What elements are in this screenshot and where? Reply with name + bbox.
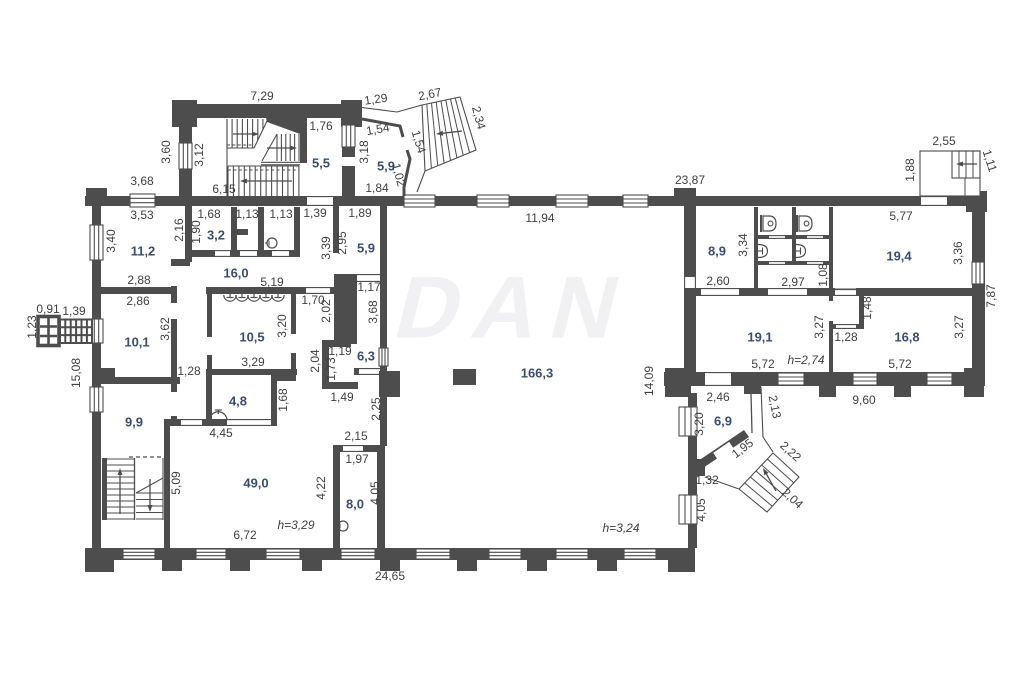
svg-text:5,5: 5,5	[312, 155, 330, 170]
svg-text:3,62: 3,62	[158, 317, 172, 341]
svg-text:1,68: 1,68	[276, 388, 290, 412]
svg-text:14,09: 14,09	[642, 366, 656, 396]
svg-text:166,3: 166,3	[521, 365, 554, 380]
svg-text:DAN: DAN	[386, 257, 643, 355]
svg-text:3,53: 3,53	[130, 208, 154, 222]
svg-text:2,95: 2,95	[335, 231, 349, 255]
svg-text:3,68: 3,68	[130, 174, 154, 188]
svg-text:3,29: 3,29	[241, 355, 265, 369]
svg-text:3,27: 3,27	[812, 315, 826, 339]
svg-text:2,88: 2,88	[127, 273, 151, 287]
svg-text:2,16: 2,16	[172, 218, 186, 242]
svg-text:49,0: 49,0	[243, 475, 268, 490]
svg-text:1,23: 1,23	[25, 315, 39, 339]
svg-text:3,68: 3,68	[366, 300, 380, 324]
svg-text:3,2: 3,2	[207, 227, 225, 242]
svg-text:1,73: 1,73	[324, 357, 338, 381]
svg-text:2,04: 2,04	[308, 349, 322, 373]
svg-text:9,60: 9,60	[852, 393, 876, 407]
svg-text:5,09: 5,09	[169, 471, 183, 495]
svg-text:1,13: 1,13	[269, 207, 293, 221]
svg-text:7,87: 7,87	[984, 284, 998, 308]
svg-text:4,8: 4,8	[229, 393, 247, 408]
svg-text:6,3: 6,3	[357, 348, 375, 363]
svg-text:3,36: 3,36	[951, 241, 965, 265]
svg-text:2,02: 2,02	[319, 299, 333, 323]
svg-text:1,90: 1,90	[189, 220, 203, 244]
svg-text:3,34: 3,34	[736, 233, 750, 257]
svg-text:1,39: 1,39	[62, 304, 86, 318]
svg-text:5,72: 5,72	[888, 357, 912, 371]
svg-text:3,60: 3,60	[159, 140, 173, 164]
svg-text:7,29: 7,29	[250, 89, 274, 103]
svg-text:4,05: 4,05	[368, 481, 382, 505]
svg-text:16,8: 16,8	[894, 329, 919, 344]
svg-text:2,15: 2,15	[344, 429, 368, 443]
svg-text:10,1: 10,1	[124, 334, 149, 349]
svg-text:5,72: 5,72	[751, 357, 775, 371]
svg-text:2,60: 2,60	[706, 274, 730, 288]
svg-text:1,28: 1,28	[834, 330, 858, 344]
svg-text:1,76: 1,76	[309, 119, 333, 133]
svg-text:1,84: 1,84	[365, 181, 389, 195]
svg-text:2,86: 2,86	[126, 294, 150, 308]
svg-text:1,88: 1,88	[903, 158, 917, 182]
svg-text:3,40: 3,40	[104, 229, 118, 253]
svg-text:19,1: 19,1	[747, 329, 772, 344]
svg-text:8,0: 8,0	[346, 496, 364, 511]
svg-text:6,9: 6,9	[714, 413, 732, 428]
svg-text:1,48: 1,48	[860, 296, 874, 320]
svg-text:1,97: 1,97	[345, 452, 369, 466]
svg-text:19,4: 19,4	[886, 248, 912, 263]
svg-text:3,18: 3,18	[357, 140, 371, 164]
svg-text:9,9: 9,9	[125, 414, 143, 429]
svg-text:1,32: 1,32	[695, 473, 719, 487]
svg-text:2,46: 2,46	[706, 390, 730, 404]
svg-text:4,22: 4,22	[314, 476, 328, 500]
svg-text:5,77: 5,77	[889, 209, 913, 223]
svg-text:8,9: 8,9	[708, 243, 726, 258]
svg-text:1,13: 1,13	[235, 207, 259, 221]
svg-text:3,12: 3,12	[192, 143, 206, 167]
svg-text:5,9: 5,9	[357, 240, 375, 255]
svg-text:10,5: 10,5	[239, 329, 264, 344]
svg-text:15,08: 15,08	[69, 358, 83, 388]
svg-text:h=3,24: h=3,24	[602, 521, 639, 535]
svg-text:24,65: 24,65	[375, 569, 405, 583]
svg-text:3,27: 3,27	[952, 315, 966, 339]
svg-text:1,17: 1,17	[357, 280, 381, 294]
svg-text:5,19: 5,19	[260, 275, 284, 289]
svg-text:3,20: 3,20	[692, 412, 706, 436]
svg-text:1,39: 1,39	[303, 206, 327, 220]
svg-text:1,08: 1,08	[816, 263, 830, 287]
svg-text:2,55: 2,55	[932, 134, 956, 148]
svg-text:1,68: 1,68	[197, 207, 221, 221]
svg-text:23,87: 23,87	[675, 173, 705, 187]
svg-text:1,19: 1,19	[328, 344, 352, 358]
svg-text:1,49: 1,49	[330, 390, 354, 404]
svg-text:4,05: 4,05	[694, 498, 708, 522]
svg-text:h=3,29: h=3,29	[277, 518, 314, 532]
svg-text:11,94: 11,94	[525, 211, 554, 225]
svg-text:16,0: 16,0	[223, 265, 248, 280]
svg-text:1,89: 1,89	[348, 206, 372, 220]
svg-text:h=2,74: h=2,74	[787, 353, 824, 367]
svg-text:6,72: 6,72	[233, 528, 257, 542]
svg-text:11,2: 11,2	[131, 243, 156, 258]
svg-text:4,45: 4,45	[209, 426, 233, 440]
svg-text:2,97: 2,97	[781, 275, 805, 289]
svg-text:6,15: 6,15	[212, 182, 236, 196]
svg-text:1,28: 1,28	[177, 364, 201, 378]
svg-text:3,20: 3,20	[275, 314, 289, 338]
svg-text:3,39: 3,39	[319, 236, 333, 260]
svg-text:0,91: 0,91	[36, 302, 60, 316]
svg-text:2,25: 2,25	[369, 397, 383, 421]
